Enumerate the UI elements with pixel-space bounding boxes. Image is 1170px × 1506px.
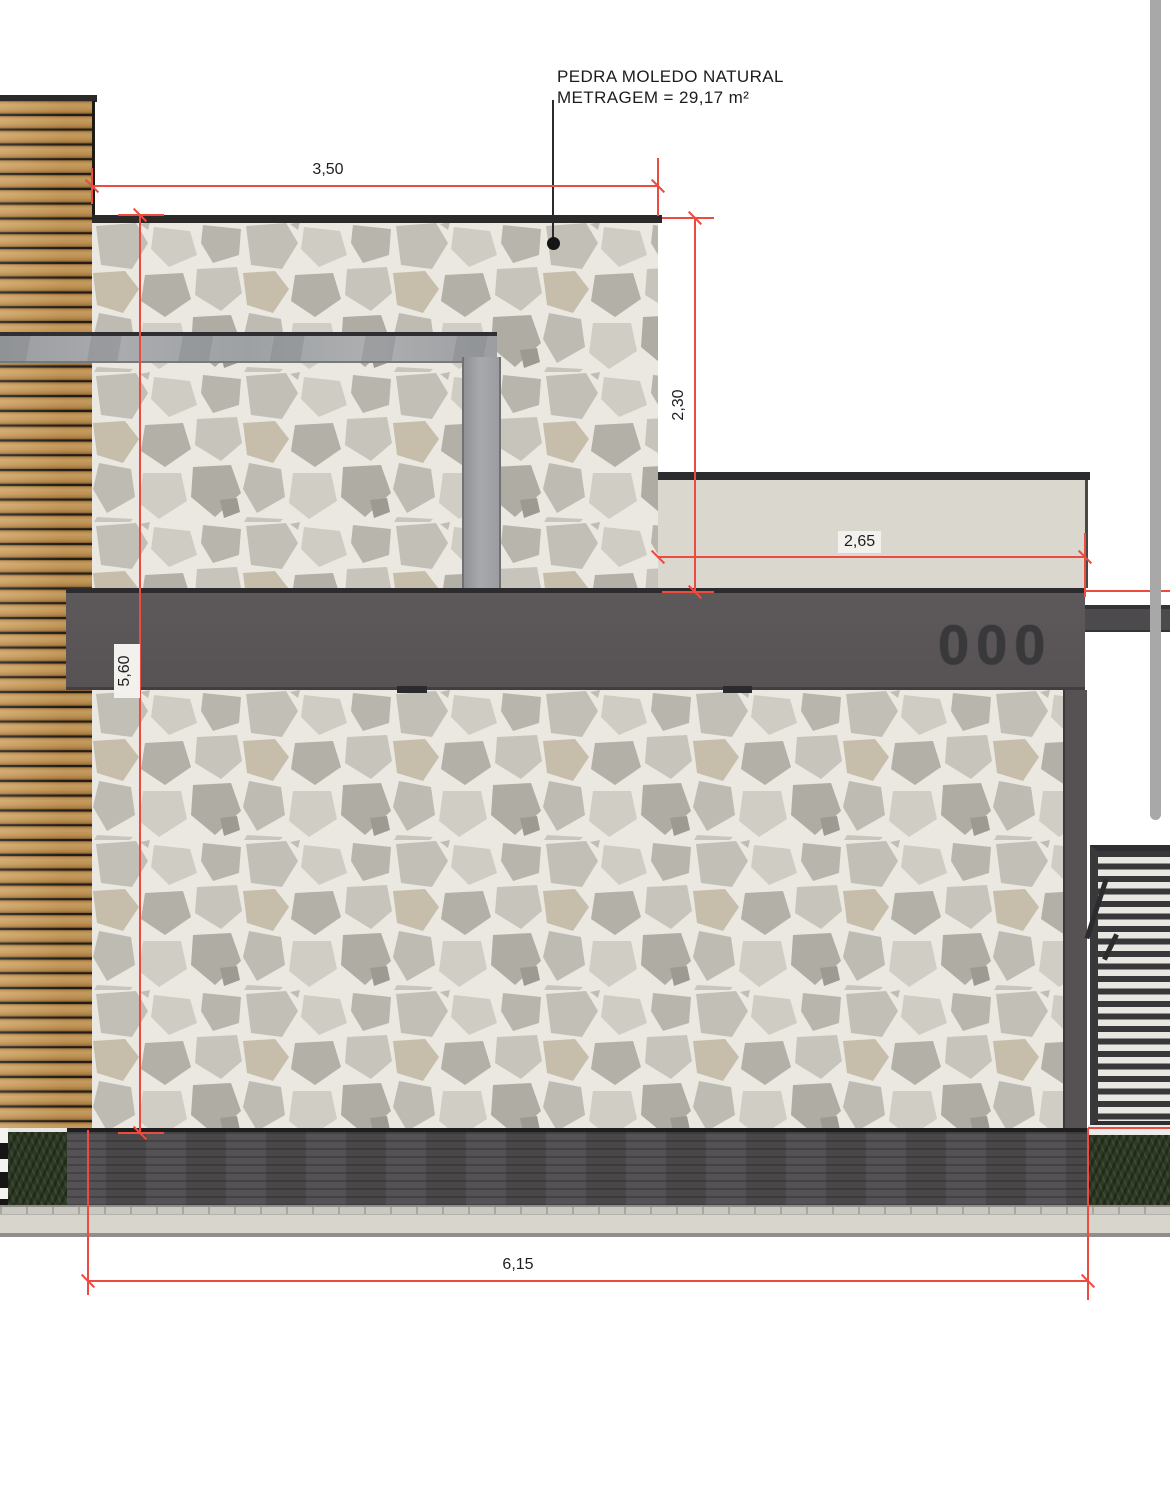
house-number: 000 — [938, 612, 1052, 677]
material-annotation: PEDRA MOLEDO NATURAL METRAGEM = 29,17 m² — [557, 66, 784, 108]
annotation-line1: PEDRA MOLEDO NATURAL — [557, 66, 784, 87]
fascia-fixture-left — [397, 686, 427, 693]
base-plinth — [66, 1128, 1088, 1205]
gate-louvers — [1098, 851, 1170, 1121]
scrollbar-thumb[interactable] — [1150, 0, 1161, 820]
dim-extension — [1088, 1127, 1170, 1129]
dim-extension — [1087, 1128, 1089, 1300]
pilaster — [1063, 690, 1087, 1132]
dim-label-top-width: 3,50 — [298, 161, 358, 179]
fascia-fixture-right — [723, 686, 752, 693]
sidewalk — [0, 1215, 1170, 1237]
dim-extension — [662, 591, 714, 593]
stone-wall-lower — [92, 690, 1063, 1128]
dim-label-left-total-height: 5,60 — [114, 644, 140, 698]
dim-label-upper-right-height: 2,30 — [670, 374, 692, 436]
dim-label-bottom-width: 6,15 — [488, 1256, 548, 1274]
dim-line — [92, 185, 658, 187]
hedge-left — [8, 1132, 67, 1205]
fascia-band — [66, 588, 1085, 690]
dim-extension — [657, 158, 659, 216]
stone-upper-top-cap — [92, 215, 662, 223]
concrete-column — [462, 357, 501, 588]
annotation-leader-dot — [547, 237, 560, 250]
stone-wall-upper — [92, 222, 658, 592]
dim-label-parapet-width: 2,65 — [838, 531, 881, 553]
dim-extension — [91, 168, 93, 204]
concrete-beam — [0, 332, 497, 363]
annotation-leader-line — [552, 100, 554, 240]
dim-line — [694, 218, 696, 592]
dim-extension — [1084, 533, 1086, 597]
hedge-right — [1088, 1135, 1170, 1205]
dim-line — [658, 556, 1085, 558]
paver-strip — [0, 1205, 1170, 1215]
elevation-drawing: 000 PEDRA MOLEDO NATURAL METRAGEM = 29,1… — [0, 0, 1170, 1506]
dim-extension — [87, 1130, 89, 1295]
dim-line — [88, 1280, 1088, 1282]
dim-extension — [118, 214, 164, 216]
annotation-line2: METRAGEM = 29,17 m² — [557, 87, 784, 108]
dim-extension — [662, 217, 714, 219]
parapet-top-cap — [658, 472, 1090, 480]
dim-extension — [118, 1132, 164, 1134]
